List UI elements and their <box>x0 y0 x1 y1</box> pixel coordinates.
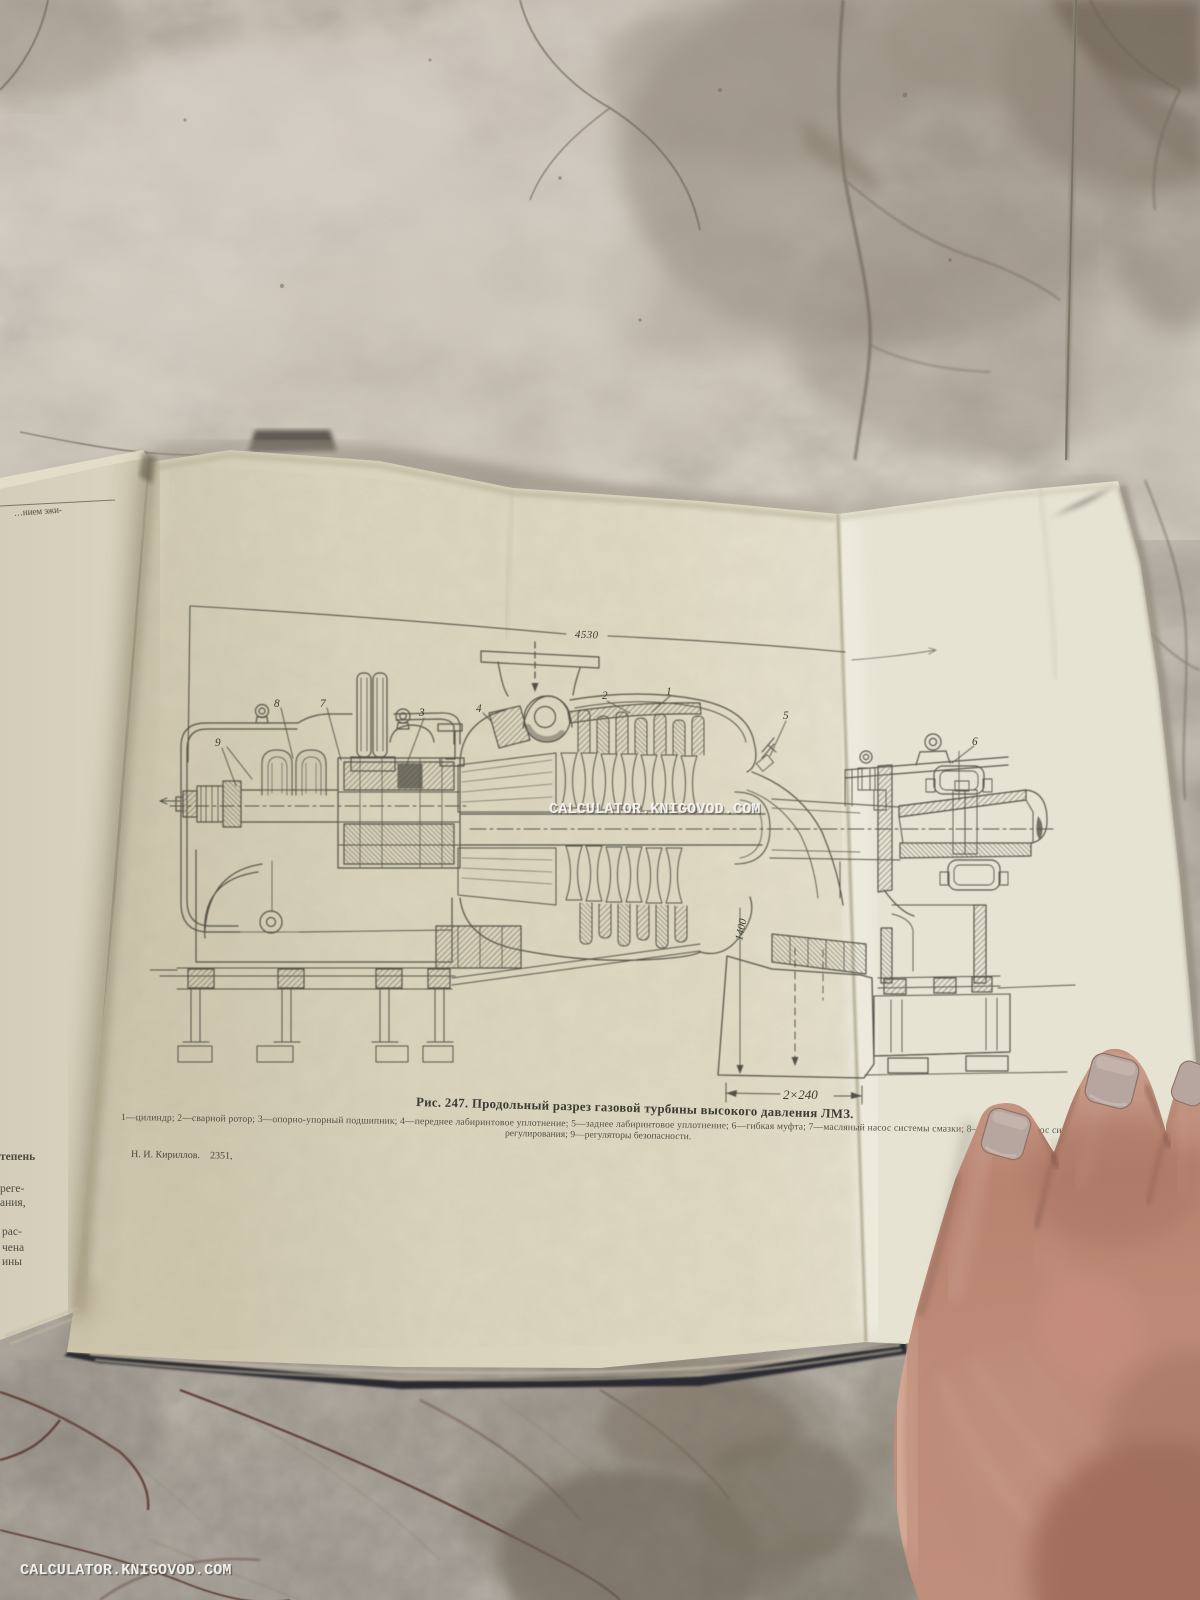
svg-text:5: 5 <box>783 710 789 722</box>
svg-text:ины: ины <box>2 1256 22 1268</box>
svg-text:4: 4 <box>476 703 482 715</box>
svg-text:2×240: 2×240 <box>783 1087 818 1102</box>
svg-text:6: 6 <box>972 736 978 748</box>
svg-text:1: 1 <box>666 686 672 698</box>
svg-text:чена: чена <box>2 1242 24 1254</box>
svg-text:8: 8 <box>274 698 280 710</box>
svg-text:рас-: рас- <box>2 1226 22 1238</box>
svg-text:тепень: тепень <box>0 1151 35 1163</box>
svg-text:CALCULATOR.KNIGOVOD.COM: CALCULATOR.KNIGOVOD.COM <box>20 1562 232 1579</box>
svg-text:3: 3 <box>418 707 425 719</box>
svg-text:2: 2 <box>602 690 608 702</box>
svg-text:реге-: реге- <box>0 1183 25 1195</box>
svg-text:4530: 4530 <box>575 629 599 642</box>
svg-text:7: 7 <box>320 698 326 710</box>
svg-text:9: 9 <box>215 737 221 749</box>
svg-text:CALCULATOR.KNIGOVOD.COM: CALCULATOR.KNIGOVOD.COM <box>549 801 761 818</box>
svg-text:ания,: ания, <box>0 1197 26 1209</box>
svg-text:Н. И. Кириллов. 2351,: Н. И. Кириллов. 2351, <box>131 1149 233 1162</box>
